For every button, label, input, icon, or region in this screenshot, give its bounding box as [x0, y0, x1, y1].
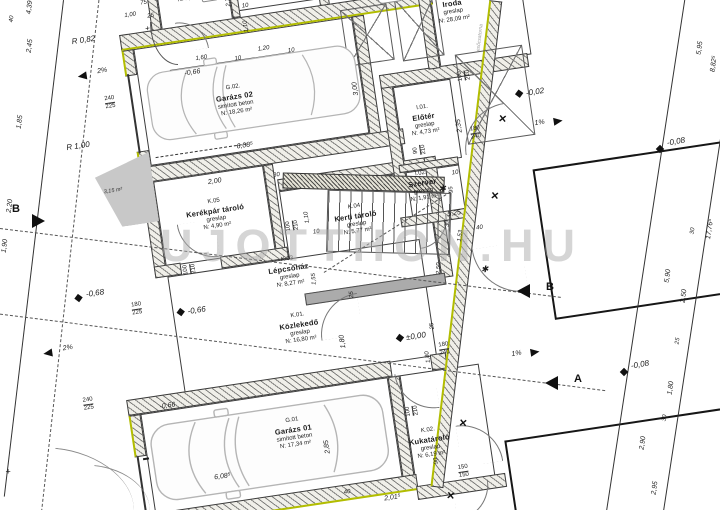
door-h: 225 [132, 308, 143, 318]
door-h: 225 [105, 102, 116, 112]
door-w: 100 [457, 71, 466, 82]
section-arrow-icon [32, 214, 45, 228]
column-x-mark: × [490, 187, 499, 203]
section-letter-a: A [574, 373, 582, 385]
door-size-label: 240 225 [104, 95, 116, 112]
radius-label: R 0,82 [71, 35, 96, 46]
slope-arrow-icon [77, 71, 87, 80]
column-x-mark: × [498, 110, 507, 126]
door-size-label: 180 225 [131, 301, 143, 318]
plus-mark: + [5, 468, 10, 477]
room-label-garage-01: G.01 Garázs 01 simított beton N: 17,34 m… [273, 415, 315, 453]
door-arc [452, 480, 493, 510]
dim-label: 90 [433, 457, 440, 465]
room-label-garage-02: G.02. Garázs 02 simított beton N: 18,26 … [214, 82, 256, 120]
room-label-eloter: I.01. Előtér greslap N: 4,73 m² [408, 103, 441, 140]
room-label-kuka: K.02. Kukatároló greslap N: 6,19 m² [407, 424, 453, 463]
slope-label: 2% [97, 67, 108, 75]
floor-plan-canvas: × × × × ✱ ✱ Mosdó greslap N: 1,76 m² N: … [0, 0, 720, 510]
room-label-szerver: I.02. Szerver greslap N: 1,91 m² [406, 168, 439, 205]
room-label-iroda: Iroda greslap N: 28,09 m² [436, 0, 471, 26]
door-h: 240 [471, 132, 482, 142]
dim-label: 1,55 [311, 273, 318, 285]
door-h: 210 [412, 405, 422, 416]
door-h: 150 [458, 471, 469, 481]
slope-arrow-icon [43, 349, 53, 358]
dim-label: 75 [140, 0, 148, 7]
dim-label: 95 [448, 186, 455, 194]
dim-label: 25 [675, 337, 682, 344]
radius-label: R 1,00 [66, 141, 91, 152]
dim-label: 2,35 [455, 119, 464, 134]
level-mark-icon [74, 294, 82, 302]
section-arrow-icon [545, 376, 558, 390]
splayed-corner [92, 152, 159, 230]
dim-label: 30 [690, 227, 697, 234]
neighbour-building-2 [504, 399, 720, 510]
level-label: -0,02 [526, 87, 545, 98]
room-label-kozlekedo: K.01. Közlekedő greslap N: 16,80 m² [278, 309, 322, 348]
slope-label: 2% [62, 344, 73, 352]
door-size-label: 180 240 [469, 125, 481, 142]
dim-label: 10 [288, 47, 296, 54]
door-w: 100 [405, 406, 414, 417]
dim-label: 30 [662, 414, 669, 421]
column-x-mark: × [446, 487, 455, 503]
door-h: 210 [419, 144, 429, 155]
section-letter-b: B [546, 281, 554, 293]
dim-label: 25 [147, 13, 155, 20]
slope-arrow-icon [530, 348, 540, 357]
dim-label: 10 [451, 170, 459, 177]
dim-label: 10 [241, 3, 249, 10]
dim-label: 2,01⁵ [384, 493, 401, 502]
slope-label: 1% [511, 350, 522, 358]
dim-label: 25 [349, 291, 355, 298]
door-w: 90 [412, 145, 421, 156]
dim-label: 2,10 [224, 0, 232, 7]
door-h: 240 [439, 348, 450, 358]
star-mark: ✱ [438, 184, 447, 194]
level-label: -0,68 [85, 288, 104, 299]
door-h: 225 [83, 403, 94, 413]
door-size-label: 240 225 [82, 396, 94, 413]
dim-label: 40 [343, 489, 351, 496]
door-size-label: 150 150 [457, 464, 469, 481]
dim-label: 25 [429, 322, 436, 330]
dim-label: 1,00 [124, 11, 136, 19]
door-h: 210 [464, 69, 474, 80]
watermark: UJOTTHON.HU [160, 220, 584, 272]
slope-label: 1% [534, 119, 545, 127]
dim-label: 10 [234, 55, 242, 62]
door-size-label: 180 240 [438, 341, 450, 358]
slope-arrow-icon [553, 117, 563, 126]
dim-label: 30 [273, 172, 281, 179]
section-arrow-icon [517, 284, 530, 298]
column-x-mark: × [459, 415, 468, 431]
dim-label: 40 [9, 15, 16, 22]
